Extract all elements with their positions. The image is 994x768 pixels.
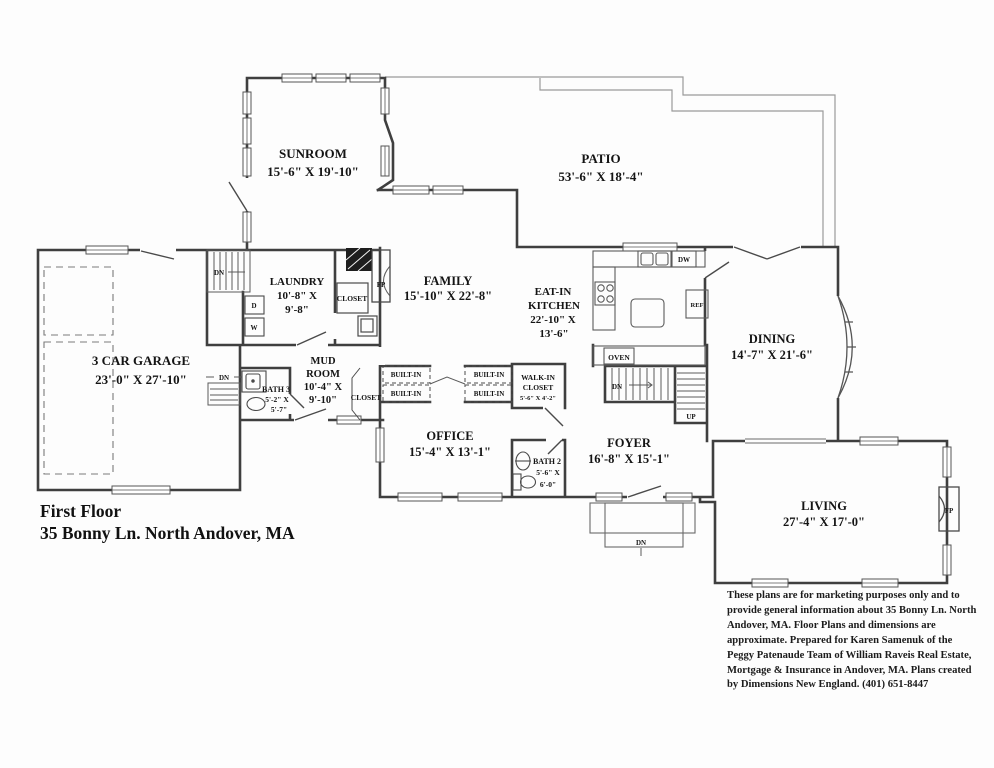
dryer-label: D	[251, 302, 256, 310]
mudroom-dims2: 9'-10"	[309, 395, 337, 406]
foyer-dims: 16'-8" X 15'-1"	[588, 452, 670, 466]
kitchen-dims2: 13'-6"	[539, 328, 568, 340]
patio-dims: 53'-6" X 18'-4"	[558, 169, 643, 184]
dw-label: DW	[678, 256, 690, 264]
disclaimer-text: These plans are for marketing purposes o…	[727, 589, 977, 693]
plan-title-line2: 35 Bonny Ln. North Andover, MA	[40, 522, 295, 544]
mudroom-dims1: 10'-4" X	[304, 382, 343, 393]
builtin-label-4: BUILT-IN	[474, 390, 505, 398]
dn-garage-stairs-label: DN	[214, 269, 224, 277]
foyer-label: FOYER	[607, 436, 652, 450]
dn-porch-label: DN	[636, 539, 646, 547]
builtin-label-1: BUILT-IN	[391, 371, 422, 379]
fp-living-label: FP	[945, 507, 954, 515]
sunroom-dims: 15'-6" X 19'-10"	[267, 164, 359, 179]
front-porch	[590, 503, 695, 556]
laundry-label: LAUNDRY	[270, 276, 325, 288]
dn-entry-steps-label: DN	[219, 374, 229, 382]
walkin-label1: WALK-IN	[521, 373, 555, 382]
builtin-label-3: BUILT-IN	[474, 371, 505, 379]
office-dims: 15'-4" X 13'-1"	[409, 445, 491, 459]
bath2-dims1: 5'-6" X	[536, 468, 560, 477]
bath3-dims1: 5'-2" X	[265, 395, 289, 404]
kitchen-dims1: 22'-10" X	[530, 314, 576, 326]
bath3-dims2: 5'-7"	[271, 405, 287, 414]
builtin-opening-chevron	[430, 377, 465, 384]
bath3-label: BATH 3	[262, 385, 290, 394]
washer-label: W	[251, 324, 258, 332]
oven-label: OVEN	[608, 353, 630, 362]
laundry-dims1: 10'-8" X	[277, 290, 317, 302]
bath2-dims2: 6'-0"	[540, 480, 556, 489]
family-label: FAMILY	[424, 274, 473, 288]
fp-family-label: FP	[377, 281, 386, 289]
mudroom-label1: MUD	[310, 356, 335, 367]
walkin-label2: CLOSET	[523, 383, 553, 392]
garage-parking-bays	[44, 267, 113, 474]
builtin-label-2: BUILT-IN	[391, 390, 422, 398]
title-block: First Floor 35 Bonny Ln. North Andover, …	[40, 500, 295, 544]
floor-plan: SUNROOM 15'-6" X 19'-10" PATIO 53'-6" X …	[0, 0, 994, 768]
living-label: LIVING	[801, 499, 847, 513]
dn-main-stairs-label: DN	[612, 383, 622, 391]
family-dims: 15'-10" X 22'-8"	[404, 289, 492, 303]
dining-dims: 14'-7" X 21'-6"	[731, 348, 813, 362]
up-stairs-label: UP	[686, 413, 696, 421]
plan-title-line1: First Floor	[40, 500, 295, 522]
mudroom-label2: ROOM	[306, 369, 340, 380]
living-dims: 27'-4" X 17'-0"	[783, 515, 865, 529]
kitchen-label2: KITCHEN	[528, 300, 580, 312]
closet-family-label: CLOSET	[337, 294, 367, 303]
kitchen-label1: EAT-IN	[535, 286, 572, 298]
bath2-label: BATH 2	[533, 457, 561, 466]
garage-label: 3 CAR GARAGE	[92, 353, 190, 368]
sunroom-label: SUNROOM	[279, 146, 347, 161]
patio-label: PATIO	[581, 151, 620, 166]
closet-mud-label: CLOSET	[351, 393, 381, 402]
ref-label: REF	[691, 302, 704, 309]
office-label: OFFICE	[426, 429, 473, 443]
garage-dims: 23'-0" X 27'-10"	[95, 372, 187, 387]
laundry-dims2: 9'-8"	[285, 304, 309, 316]
walkin-dims: 5'-6" X 4'-2"	[520, 395, 556, 402]
dining-label: DINING	[749, 332, 796, 346]
